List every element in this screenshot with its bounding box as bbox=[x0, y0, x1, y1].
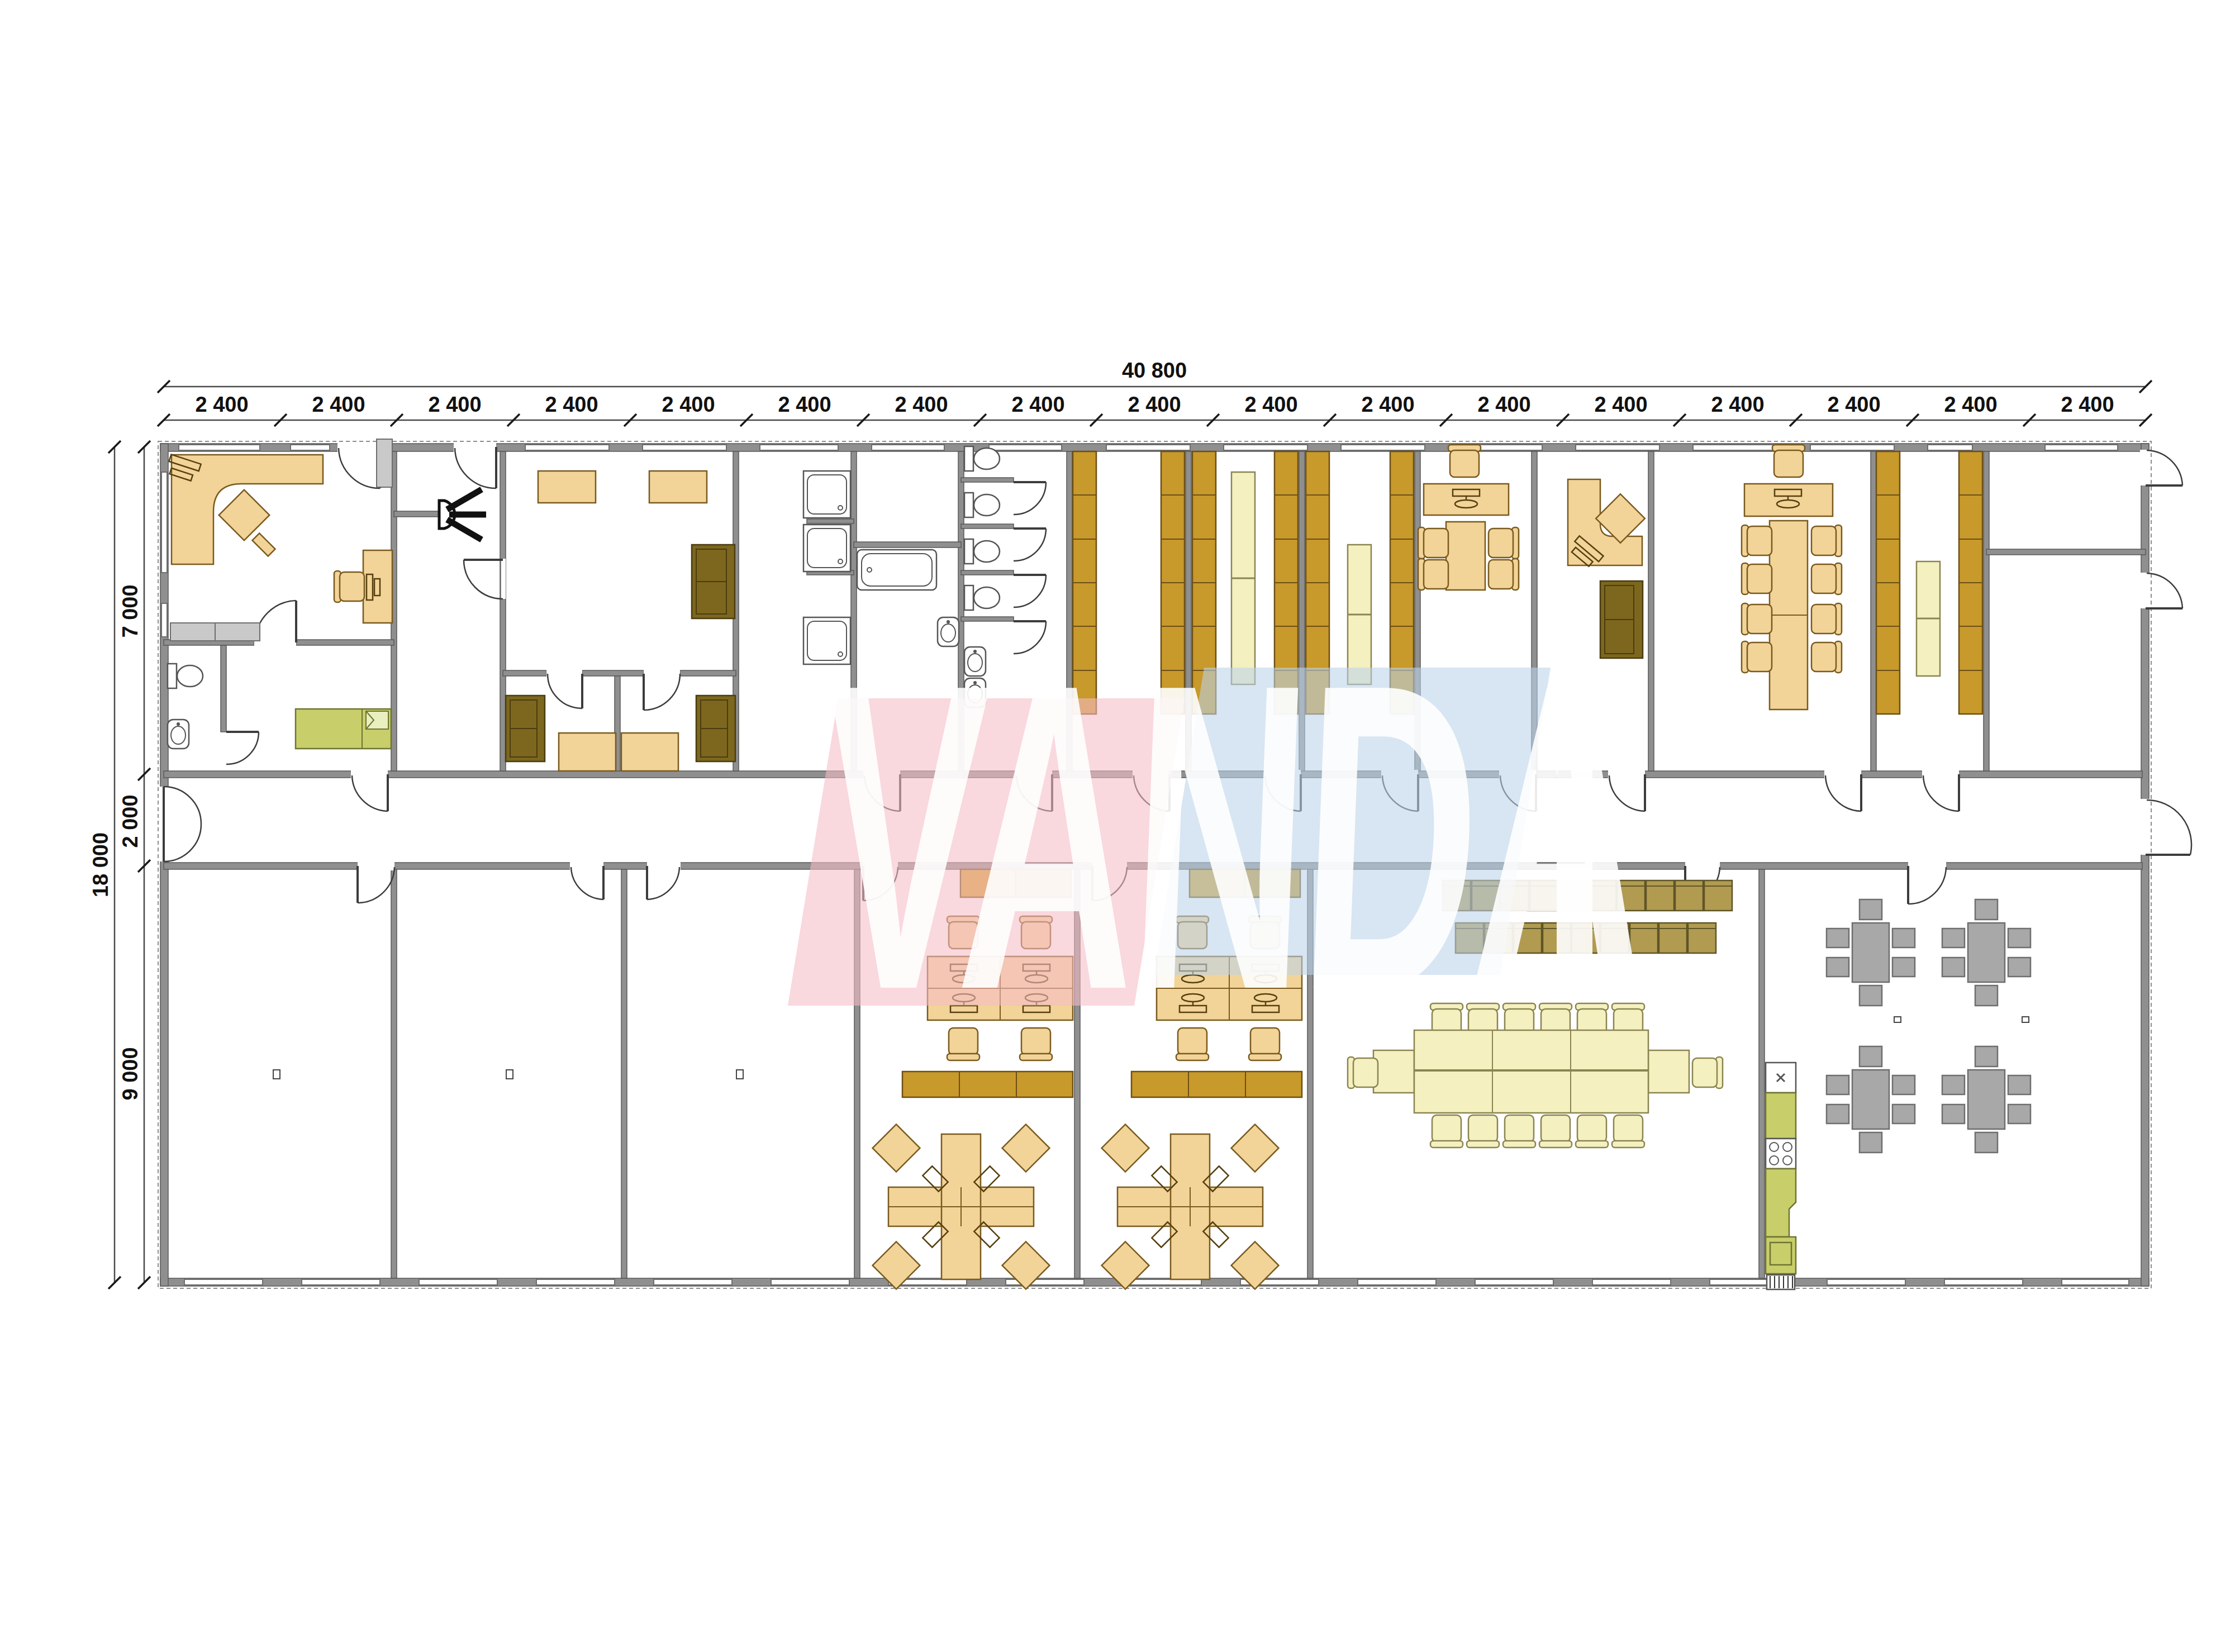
fridge-icon bbox=[1766, 1237, 1796, 1274]
stove-icon bbox=[1766, 1139, 1796, 1169]
total-width-label: 40 800 bbox=[1122, 359, 1187, 382]
band-top-label: 7 000 bbox=[118, 584, 142, 637]
svg-text:2 400: 2 400 bbox=[1244, 393, 1297, 416]
bay-labels: 2 400 2 400 2 400 2 400 2 400 2 400 2 40… bbox=[195, 393, 2114, 416]
sink-icon bbox=[168, 720, 189, 749]
side-table-icon bbox=[252, 533, 275, 556]
meeting-table-icon bbox=[1446, 522, 1485, 590]
office-chair-icon bbox=[1742, 563, 1772, 594]
kitchenette bbox=[1766, 1063, 1796, 1289]
band-bottom-label: 9 000 bbox=[118, 1047, 142, 1100]
svg-text:2 400: 2 400 bbox=[195, 393, 248, 416]
left-dimension-lines: 18 000 7 000 2 000 9 000 bbox=[89, 441, 150, 1289]
office-chair-icon bbox=[1489, 527, 1519, 559]
svg-text:2 400: 2 400 bbox=[1594, 393, 1647, 416]
office-chair-icon bbox=[334, 571, 364, 602]
svg-text:2 400: 2 400 bbox=[2061, 393, 2114, 416]
room-office-small bbox=[1418, 445, 1519, 590]
watermark: VANDA bbox=[788, 593, 1655, 1080]
office-chair-icon bbox=[1811, 603, 1842, 635]
toilet-icon bbox=[964, 539, 1000, 564]
toilet-icon bbox=[964, 493, 1000, 517]
svg-text:2 400: 2 400 bbox=[1944, 393, 1997, 416]
window-icon bbox=[184, 1279, 2129, 1285]
window-icon bbox=[161, 603, 167, 637]
watermark-cropped-letter bbox=[1557, 677, 1592, 988]
office-chair-icon bbox=[1811, 641, 1842, 673]
svg-text:2 400: 2 400 bbox=[1477, 393, 1530, 416]
armchair-icon bbox=[506, 696, 545, 761]
watermark-text: VANDA bbox=[814, 593, 1655, 1080]
toilet-icon bbox=[964, 446, 1000, 471]
bed-icon bbox=[296, 709, 391, 749]
counter-icon bbox=[1766, 1169, 1796, 1237]
svg-text:2 400: 2 400 bbox=[662, 393, 715, 416]
office-chair-icon bbox=[219, 490, 270, 541]
floor-plan-canvas: 40 800 2 400 2 400 2 400 2 400 2 400 2 4… bbox=[0, 0, 2235, 1652]
counter-icon bbox=[1766, 1093, 1796, 1139]
office-chair-icon bbox=[1418, 559, 1448, 590]
office-chair-icon bbox=[1742, 603, 1772, 635]
cafeteria bbox=[1827, 899, 2030, 1153]
left-total-label: 18 000 bbox=[89, 832, 112, 897]
svg-text:2 400: 2 400 bbox=[1011, 393, 1064, 416]
dining-table-icon bbox=[1942, 899, 2030, 1006]
svg-text:2 400: 2 400 bbox=[1827, 393, 1880, 416]
shower-icon bbox=[803, 471, 850, 518]
window-icon bbox=[161, 472, 167, 573]
dining-table-icon bbox=[1827, 899, 1915, 1006]
shelving-icon bbox=[1917, 561, 1940, 676]
dining-table-icon bbox=[1942, 1046, 2030, 1153]
shelving-icon bbox=[1876, 451, 1900, 714]
table-icon bbox=[621, 733, 678, 771]
toilet-icon bbox=[168, 664, 203, 688]
wall-lamp-icon bbox=[439, 489, 486, 540]
kitchen-sink-icon bbox=[1766, 1063, 1796, 1093]
svg-text:2 400: 2 400 bbox=[1361, 393, 1414, 416]
sofa-icon bbox=[692, 545, 735, 618]
double-door-icon bbox=[159, 787, 201, 861]
top-dimension-lines: 40 800 2 400 2 400 2 400 2 400 2 400 2 4… bbox=[158, 359, 2152, 426]
bathtub-icon bbox=[857, 550, 936, 590]
desk-icon bbox=[363, 550, 392, 623]
office-chair-icon bbox=[1772, 445, 1805, 477]
svg-text:2 400: 2 400 bbox=[1128, 393, 1181, 416]
office-chair-icon bbox=[1742, 525, 1772, 556]
empty-rooms-markers bbox=[273, 1070, 743, 1079]
shelving-icon bbox=[1959, 451, 1982, 714]
armchair-icon bbox=[696, 696, 735, 761]
dining-table-icon bbox=[1827, 1046, 1915, 1153]
office-chair-icon bbox=[1448, 445, 1481, 477]
svg-text:2 400: 2 400 bbox=[895, 393, 948, 416]
room-conference bbox=[1742, 445, 1842, 710]
cabinet-icon bbox=[377, 439, 392, 487]
table-icon bbox=[538, 471, 596, 503]
office-chair-icon bbox=[1811, 563, 1842, 594]
vent-grille-icon bbox=[1767, 1275, 1795, 1289]
svg-text:2 400: 2 400 bbox=[1711, 393, 1764, 416]
shower-icon bbox=[803, 525, 850, 572]
svg-text:2 400: 2 400 bbox=[778, 393, 831, 416]
office-chair-icon bbox=[1811, 525, 1842, 556]
svg-text:2 400: 2 400 bbox=[312, 393, 365, 416]
table-icon bbox=[649, 471, 707, 503]
svg-text:2 400: 2 400 bbox=[428, 393, 481, 416]
room-manager-suite bbox=[165, 439, 392, 749]
svg-text:2 400: 2 400 bbox=[545, 393, 598, 416]
office-chair-icon bbox=[1489, 559, 1519, 590]
table-icon bbox=[559, 733, 616, 771]
floor-plan-page: 40 800 2 400 2 400 2 400 2 400 2 400 2 4… bbox=[0, 0, 2235, 1652]
office-chair-icon bbox=[1418, 527, 1448, 559]
room-archive-2 bbox=[1876, 451, 1982, 714]
band-corridor-label: 2 000 bbox=[118, 794, 142, 848]
office-chair-icon bbox=[1742, 641, 1772, 673]
